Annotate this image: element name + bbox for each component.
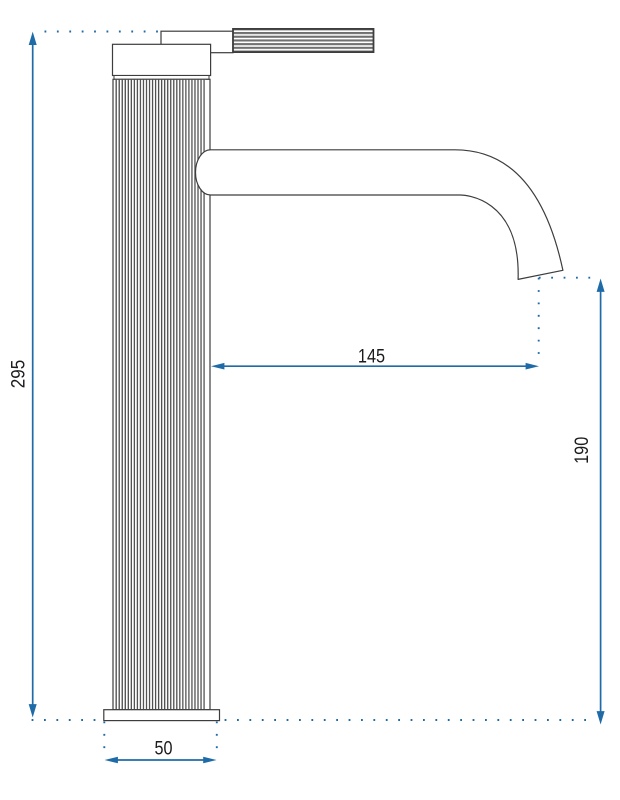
svg-text:50: 50 [155,739,173,760]
svg-text:190: 190 [572,437,593,464]
svg-text:295: 295 [9,360,30,389]
svg-text:145: 145 [358,347,385,368]
